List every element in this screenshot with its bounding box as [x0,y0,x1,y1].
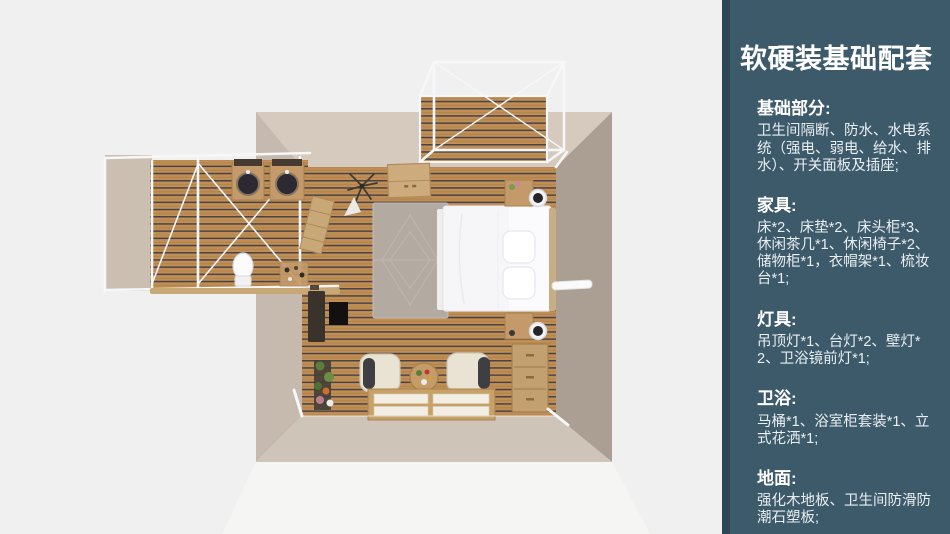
section-flooring-body: 强化木地板、卫生间防滑防潮石塑板; [757,493,936,527]
section-lighting-heading: 灯具: [757,310,936,330]
toilet-icon [233,253,253,286]
section-flooring-heading: 地面: [757,469,936,489]
bathroom-wing [105,153,340,294]
pillow-icon [503,231,535,263]
section-basics: 基础部分: 卫生间隔断、防水、水电系统（强电、弱电、给水、排水）、开关面板及插座… [757,99,936,175]
double-bed-icon [437,206,556,311]
section-furniture: 家具: 床*2、床垫*2、床头柜*3、休闲茶几*1、休闲椅子*2、储物柜*1，衣… [757,196,936,289]
info-sidebar: 软硬装基础配套 基础部分: 卫生间隔断、防水、水电系统（强电、弱电、给水、排水）… [722,0,950,534]
armchair-icon [447,353,490,392]
nightstand-icon [505,180,533,206]
coffee-table-icon [410,363,438,391]
vase-flowers-icon [516,182,521,187]
vase-flowers-icon [509,184,515,190]
section-lighting: 灯具: 吊顶灯*1、台灯*2、壁灯*2、卫浴镜前灯*1; [757,310,936,369]
wardrobe-icon [387,163,430,197]
section-bathroom-body: 马桶*1、浴室柜套装*1、立式花洒*1; [757,414,936,448]
sink-basin-icon [237,173,259,195]
table-lamp-icon [530,190,547,207]
closet-area [105,155,152,291]
deck-floor-icon [420,96,547,162]
section-basics-heading: 基础部分: [757,99,936,119]
drawer-chest-icon [512,344,548,412]
section-furniture-heading: 家具: [757,196,936,216]
section-flooring: 地面: 强化木地板、卫生间防滑防潮石塑板; [757,469,936,528]
ground-shadow [222,462,650,534]
floorplan-panel [0,0,722,534]
sink-basin-icon [276,173,298,195]
section-bathroom: 卫浴: 马桶*1、浴室柜套装*1、立式花洒*1; [757,389,936,448]
plant-stand-icon [314,360,334,410]
armchair-icon [360,354,400,392]
mirror-icon [234,159,262,166]
nightstand-icon [505,313,533,339]
section-bathroom-heading: 卫浴: [757,389,936,409]
sidebar-title: 软硬装基础配套 [740,44,936,75]
table-lamp-icon [530,323,547,340]
floorplan-render [0,0,722,534]
slide: 软硬装基础配套 基础部分: 卫生间隔断、防水、水电系统（强电、弱电、给水、排水）… [0,0,950,534]
section-basics-body: 卫生间隔断、防水、水电系统（强电、弱电、给水、排水）、开关面板及插座; [757,123,936,174]
pillow-icon [503,267,535,299]
section-furniture-body: 床*2、床垫*2、床头柜*3、休闲茶几*1、休闲椅子*2、储物柜*1，衣帽架*1… [757,220,936,288]
bath-shelf [280,262,308,286]
section-lighting-body: 吊顶灯*1、台灯*2、壁灯*2、卫浴镜前灯*1; [757,334,936,368]
balcony-deck [420,96,547,162]
screen-icon [329,302,348,325]
headboard [549,208,556,311]
wall-rail-icon [552,280,592,290]
rug-icon [373,203,448,318]
mirror-icon [272,159,302,166]
